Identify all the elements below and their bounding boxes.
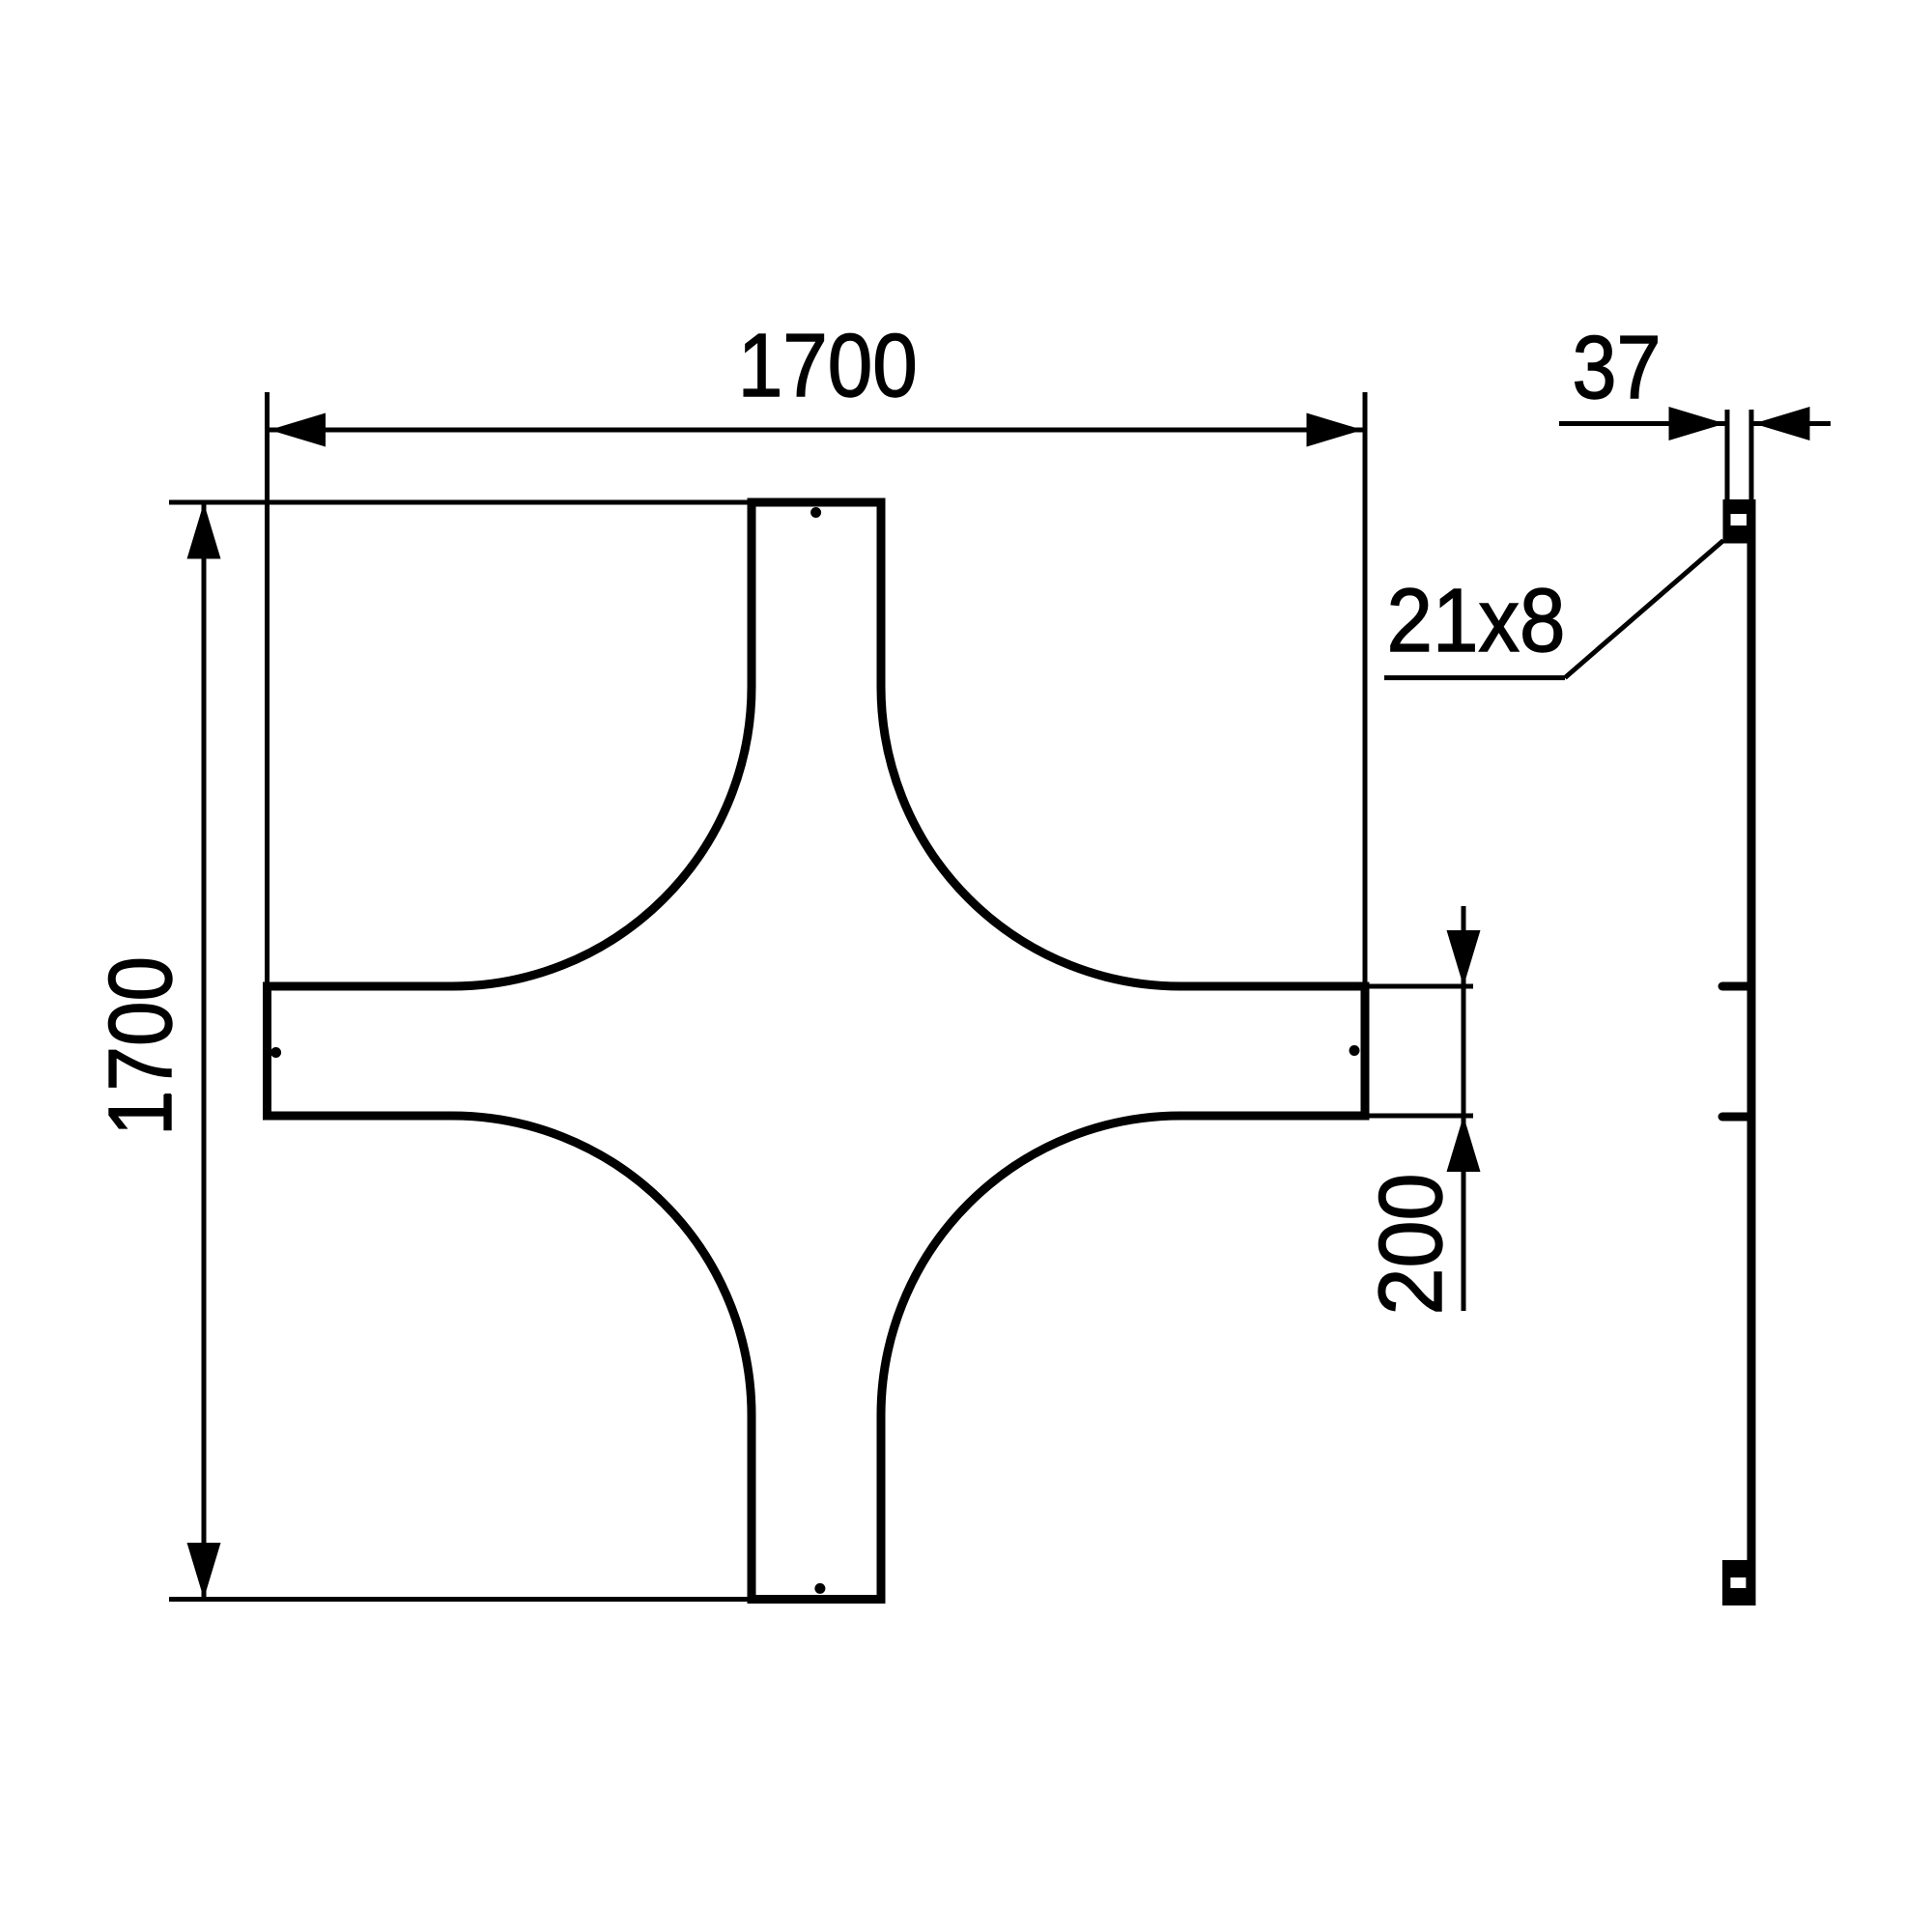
svg-text:1700: 1700 [90,956,190,1136]
svg-text:21x8: 21x8 [1387,570,1566,670]
svg-text:37: 37 [1573,317,1662,417]
svg-text:1700: 1700 [738,315,918,415]
svg-text:200: 200 [1360,1174,1461,1316]
